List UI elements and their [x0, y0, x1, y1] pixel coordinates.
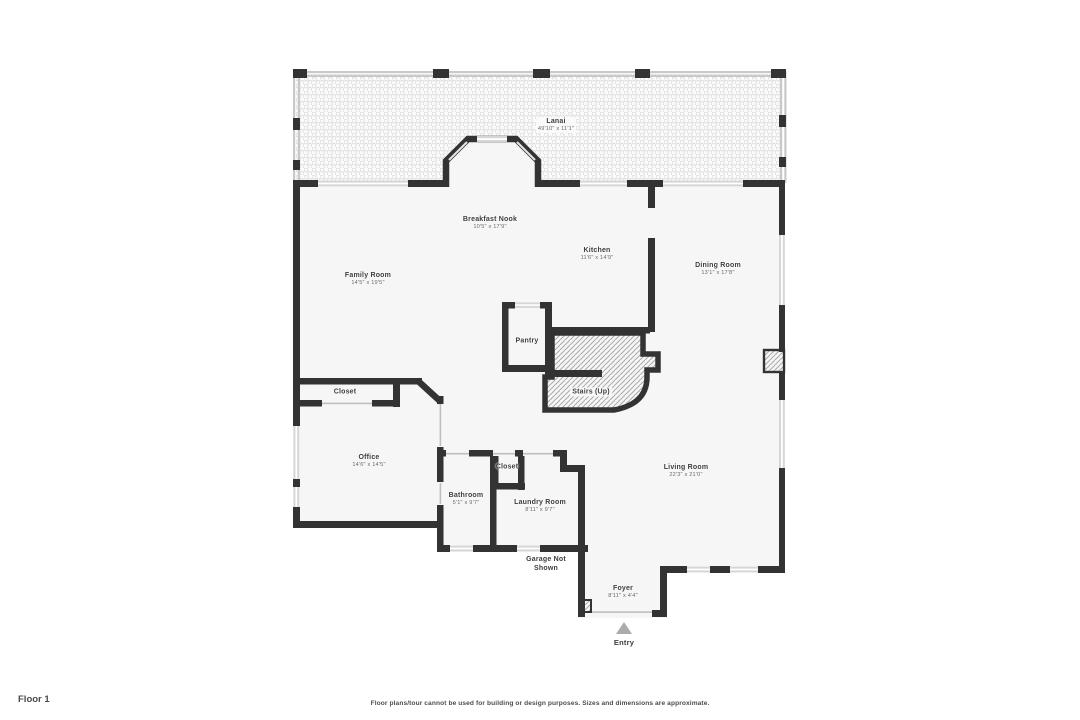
floor-plan-page: Lanai 49'10" x 11'1" Breakfast Nook 10'5…	[0, 0, 1080, 720]
entry-arrow-icon	[616, 622, 632, 634]
disclaimer-text: Floor plans/tour cannot be used for buil…	[0, 700, 1080, 707]
fireplace	[764, 350, 784, 372]
bay-window	[446, 136, 538, 187]
floor-plan-canvas	[0, 0, 1080, 720]
